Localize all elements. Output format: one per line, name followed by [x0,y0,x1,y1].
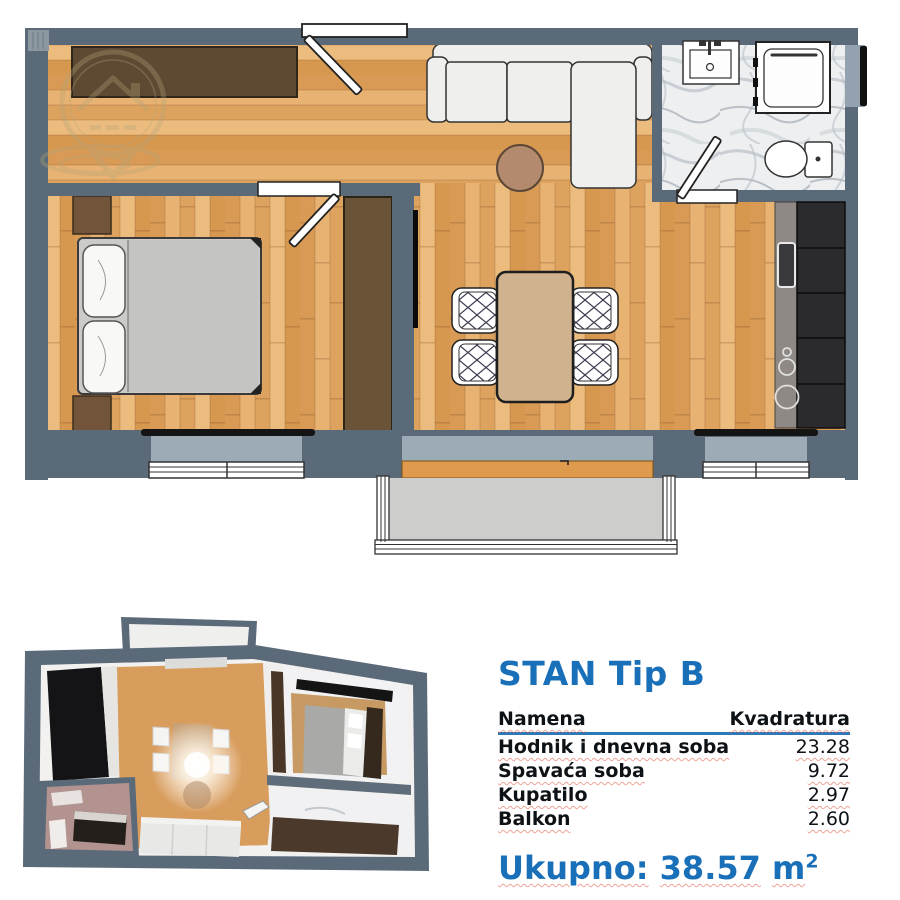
bedroom-window [141,429,315,478]
room-area: 23.28 [729,734,850,760]
total-area: Ukupno: 38.57 m2 [498,849,870,887]
table-row: Hodnik i dnevna soba 23.28 [498,734,850,760]
room-name: Hodnik i dnevna soba [498,734,729,760]
balcony [375,476,677,554]
bathroom-sink [683,40,739,84]
double-bed [78,238,261,394]
floor-plan-3d [15,605,445,900]
floor-plan-2d [0,0,900,560]
header-namena: Namena [498,708,729,734]
info-panel: STAN Tip B Namena Kvadratura Hodnik i dn… [498,654,870,887]
room-area: 2.97 [729,783,850,807]
table-row: Balkon 2.60 [498,807,850,831]
kitchen-3d [47,667,109,781]
room-name: Balkon [498,807,729,831]
dining-table [497,272,573,402]
kitchen-sink [778,243,795,287]
table-header-row: Namena Kvadratura [498,708,850,734]
kitchen-counter [775,202,845,428]
room-area: 9.72 [729,759,850,783]
room-area: 2.60 [729,807,850,831]
toilet [765,141,832,177]
area-table: Namena Kvadratura Hodnik i dnevna soba 2… [498,708,850,831]
room-name: Spavaća soba [498,759,729,783]
coffee-table [497,145,543,191]
table-row: Kupatilo 2.97 [498,783,850,807]
balcony-door [402,436,653,478]
wardrobe [344,197,392,434]
table-row: Spavaća soba 9.72 [498,759,850,783]
nightstand-bottom [73,396,111,434]
header-kvadratura: Kvadratura [729,708,850,734]
page-title: STAN Tip B [498,654,870,693]
washing-machine [753,42,830,113]
tv [413,210,418,328]
exterior-ledge [845,45,867,107]
room-name: Kupatilo [498,783,729,807]
nightstand-top [73,196,111,234]
floorplan-sheet: STAN Tip B Namena Kvadratura Hodnik i dn… [0,0,900,900]
